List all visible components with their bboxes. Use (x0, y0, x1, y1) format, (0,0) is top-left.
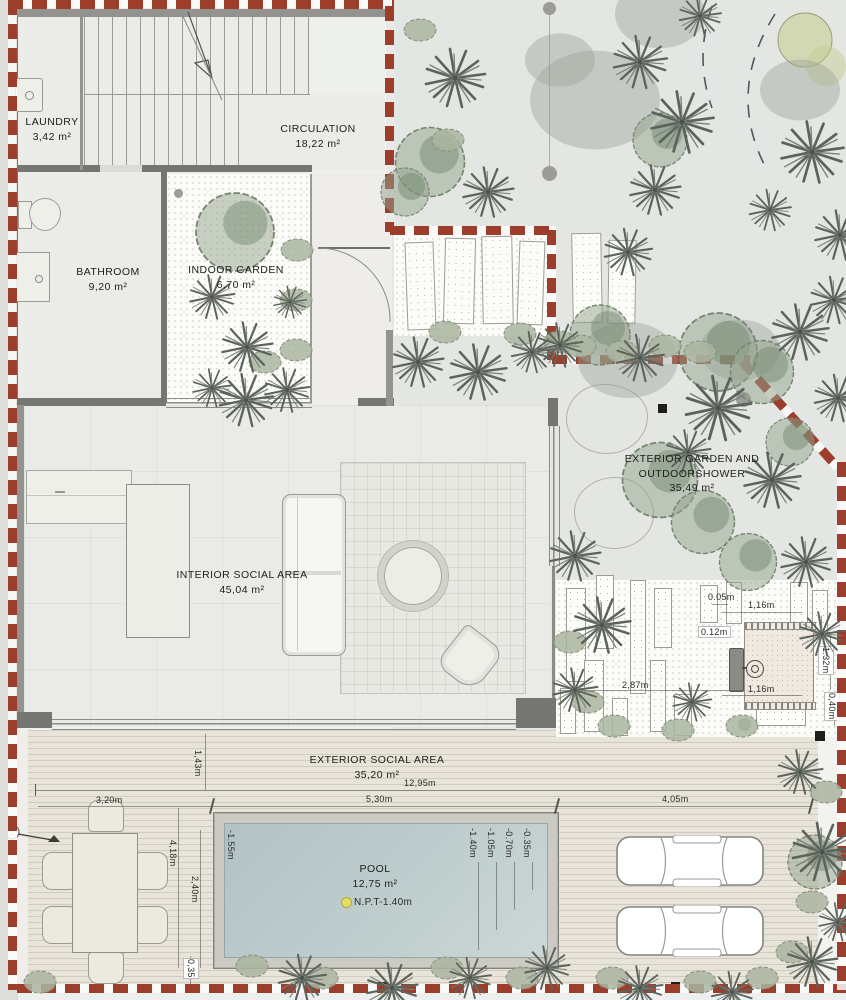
dining-chair (102, 600, 122, 626)
boundary-bottom (17, 984, 846, 993)
label-exterior-garden: EXTERIOR GARDEN AND OUTDOORSHOWER 35,49 … (622, 452, 762, 496)
boundary-right-upper (385, 6, 394, 232)
outdoor-chair (42, 852, 74, 890)
dim-shower-fixture: 0.12m (698, 626, 731, 638)
car (615, 835, 765, 887)
pool-depth-label: -1.40m (468, 828, 478, 858)
dim-driveway: 4,05m (662, 794, 689, 804)
dim-shower-pad-top: 1,16m (748, 600, 775, 610)
label-pool-npt: N.P.T-1.40m (354, 897, 412, 908)
label-indoor-garden: INDOOR GARDEN 6,70 m² (176, 263, 296, 292)
outdoor-chair (88, 952, 124, 984)
dining-chair (192, 606, 212, 632)
pool-depth-label: -0.70m (504, 828, 514, 858)
wall-social-left-jamb (16, 712, 52, 728)
label-bathroom: BATHROOM 9,20 m² (48, 265, 168, 294)
dining-chair (145, 640, 171, 660)
coffee-table (378, 541, 448, 611)
dining-chair (192, 512, 212, 538)
outdoor-chair (136, 852, 168, 890)
stair-arrow-icon (150, 8, 270, 108)
entry-door-swing (310, 240, 400, 335)
dim-shower-gap: 0.05m (708, 592, 735, 602)
boundary-top (8, 0, 394, 9)
npt-marker (341, 897, 352, 908)
door-gap-bathroom (100, 165, 142, 172)
dim-pool-band: 2,40m (190, 876, 200, 903)
car (615, 905, 765, 957)
pool-depth-label: -1.05m (486, 828, 496, 858)
washing-machine (15, 78, 43, 112)
boundary-step-v1 (547, 230, 556, 360)
pool-depth-label: -1.55m (226, 830, 236, 860)
shower-fixture (729, 648, 744, 692)
dim-pad-height: 1.32m (818, 646, 834, 675)
label-circulation: CIRCULATION 18,22 m² (258, 122, 378, 151)
outdoor-chair (136, 906, 168, 944)
label-interior-social: INTERIOR SOCIAL AREA 45,04 m² (172, 568, 312, 597)
dim-edge-strip: 0,35 (183, 958, 199, 979)
wall-hall-right-lower (386, 330, 393, 406)
boundary-right-lower (837, 462, 846, 990)
bathroom-sink (16, 252, 50, 302)
shower-head-icon (746, 660, 764, 678)
dim-deck-offset: 1,43m (193, 750, 203, 777)
site-floor-plan: 12,95m 5,30m 4,05m 3,20m 1,43m 4,18m 2,4… (0, 0, 846, 1000)
boundary-step-h1 (390, 226, 556, 235)
boundary-step-h2 (552, 355, 750, 364)
dining-table (126, 484, 190, 638)
dim-deck-length: 4,18m (168, 840, 178, 867)
wall-bottom-bathroom (16, 398, 166, 406)
wall-social-ne-jamb (548, 398, 558, 426)
outdoor-chair (42, 906, 74, 944)
wall-social-se-jamb (516, 698, 558, 728)
window-social-south (52, 719, 516, 730)
label-exterior-social: EXTERIOR SOCIAL AREA 35,20 m² (307, 753, 447, 782)
dining-chair (102, 508, 122, 534)
dim-gravel: 2,87m (622, 680, 649, 690)
outdoor-table (72, 833, 138, 953)
wall-social-east-lower (552, 566, 555, 698)
label-pool: POOL 12,75 m² (315, 862, 435, 891)
dim-shower-pad-bottom: 1,16m (748, 684, 775, 694)
label-laundry: LAUNDRY 3,42 m² (2, 115, 102, 144)
dining-chair (145, 460, 171, 480)
dim-pool-width: 5,30m (366, 794, 393, 804)
pool-depth-label: -0.35m (522, 828, 532, 858)
dim-table-zone: 3,20m (96, 795, 123, 805)
boundary-left (8, 0, 17, 990)
wall-social-left (16, 405, 24, 727)
window-indoor-garden (166, 398, 312, 408)
wall-laundry-stairs (80, 16, 83, 170)
window-social-east (549, 426, 560, 566)
